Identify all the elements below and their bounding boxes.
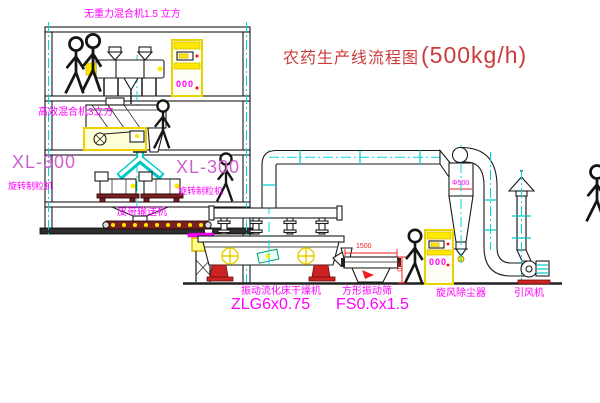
label-dryer-model: ZLG6x0.75	[231, 297, 310, 313]
label-screen-model: FS0.6x1.5	[336, 297, 409, 313]
induced-draft-fan	[518, 261, 550, 284]
label-high-mixer: 高效混合机3立方	[38, 108, 114, 118]
worker-figure	[587, 165, 600, 221]
title-capacity: (500kg/h)	[421, 42, 527, 69]
cabinet-display-upper: 000	[176, 80, 194, 89]
label-granulator-model-left: XL-300	[12, 153, 76, 171]
exhaust-duct	[262, 151, 446, 209]
label-cyclone-name: 旋风除尘器	[436, 289, 486, 299]
drawing-title: 农药生产线流程图 (500kg/h)	[283, 42, 527, 69]
label-gravity-mixer: 无重力混合机1.5 立方	[84, 10, 181, 20]
worker-figure	[405, 230, 423, 283]
worker-figure	[82, 34, 101, 91]
title-chinese: 农药生产线流程图	[283, 44, 419, 68]
diagram-canvas: 农药生产线流程图 (500kg/h) 无重力混合机1.5 立方 高效混合机3立方…	[0, 0, 600, 403]
label-granulator-name-left: 旋转制粒机	[8, 182, 53, 191]
worker-figure	[66, 37, 84, 93]
dim-cyclone-diameter: Φ500	[452, 180, 469, 187]
label-fan-name: 引风机	[514, 289, 544, 299]
gravity-free-mixer	[86, 47, 164, 104]
cabinet-display-lower: 000	[429, 258, 447, 267]
dim-screen-length: 1500	[356, 243, 372, 250]
dim-screen-height: 540	[395, 260, 402, 272]
label-granulator-model-right: XL-300	[176, 158, 240, 176]
label-granulator-name-right: 旋转制粒机	[178, 187, 223, 196]
label-belt-conveyor: 皮带输送机	[117, 208, 167, 218]
rotary-granulator-left	[95, 172, 139, 202]
